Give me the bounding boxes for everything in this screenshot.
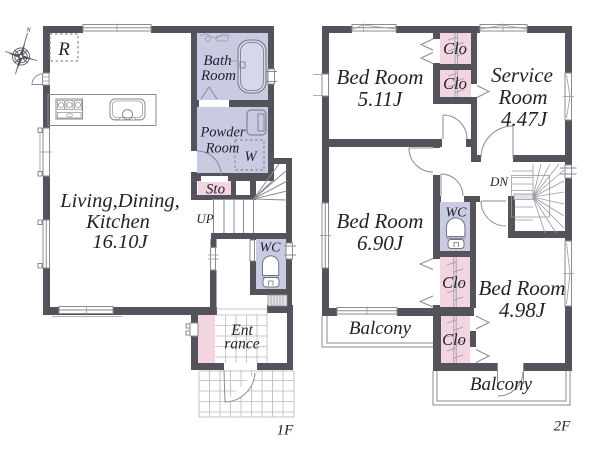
svg-text:R: R xyxy=(57,39,70,60)
svg-text:Service: Service xyxy=(491,63,553,87)
svg-text:Clo: Clo xyxy=(442,330,466,349)
svg-text:Bed Room: Bed Room xyxy=(337,65,424,89)
svg-text:6.90J: 6.90J xyxy=(357,231,405,255)
svg-text:4.47J: 4.47J xyxy=(501,107,549,131)
svg-text:N: N xyxy=(25,27,31,34)
svg-text:WC: WC xyxy=(446,206,468,221)
svg-text:16.10J: 16.10J xyxy=(92,231,148,253)
svg-text:UP: UP xyxy=(196,211,213,226)
svg-text:2F: 2F xyxy=(554,419,572,435)
svg-text:Room: Room xyxy=(200,68,236,84)
svg-text:Bed Room: Bed Room xyxy=(479,276,566,300)
svg-text:Kitchen: Kitchen xyxy=(85,211,150,233)
svg-text:Room: Room xyxy=(498,85,548,109)
svg-text:Sto: Sto xyxy=(206,182,226,198)
svg-text:Living,Dining,: Living,Dining, xyxy=(59,190,180,212)
svg-text:WC: WC xyxy=(260,241,282,256)
svg-text:Powder: Powder xyxy=(199,125,245,141)
svg-text:W: W xyxy=(244,149,258,165)
svg-text:Bath: Bath xyxy=(203,53,231,69)
svg-text:1F: 1F xyxy=(277,423,295,439)
svg-text:rance: rance xyxy=(224,336,259,353)
svg-text:Clo: Clo xyxy=(443,39,467,58)
svg-text:Clo: Clo xyxy=(443,74,467,93)
svg-text:Bed Room: Bed Room xyxy=(337,209,424,233)
svg-text:Room: Room xyxy=(205,141,240,157)
svg-text:Balcony: Balcony xyxy=(470,374,533,395)
svg-text:4.98J: 4.98J xyxy=(499,298,547,322)
svg-text:Balcony: Balcony xyxy=(349,318,412,339)
svg-text:DN: DN xyxy=(489,174,509,189)
svg-text:5.11J: 5.11J xyxy=(358,87,404,111)
svg-text:Clo: Clo xyxy=(442,273,466,292)
